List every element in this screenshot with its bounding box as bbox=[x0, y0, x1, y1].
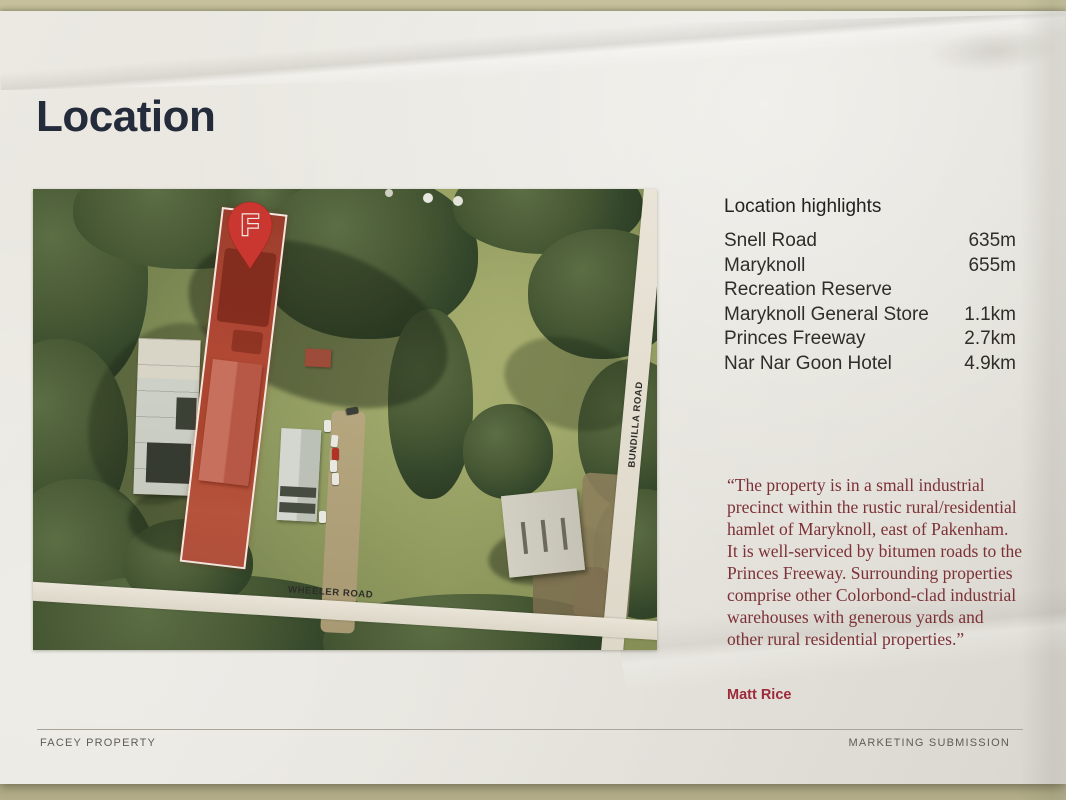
highlight-value: 635m bbox=[968, 229, 1016, 254]
roller-door-slit bbox=[521, 522, 528, 554]
parked-car bbox=[319, 511, 326, 523]
highlight-label: Nar Nar Goon Hotel bbox=[724, 352, 892, 377]
pin-icon: F bbox=[223, 199, 277, 273]
roller-door-slit bbox=[561, 518, 568, 550]
highlight-label: Snell Road bbox=[724, 229, 817, 254]
warehouse-bottom-right bbox=[501, 488, 585, 577]
page-title: Location bbox=[36, 92, 215, 142]
highlights-list: Snell Road 635m Maryknoll 655m Recreatio… bbox=[724, 229, 1016, 377]
footer-brand: FACEY PROPERTY bbox=[40, 737, 156, 749]
parked-car bbox=[332, 473, 339, 485]
parked-car bbox=[330, 460, 337, 472]
highlights-heading: Location highlights bbox=[724, 196, 881, 218]
solar-strip bbox=[279, 502, 315, 514]
f-marker-pin: F bbox=[223, 199, 277, 273]
dirt-patch bbox=[533, 567, 608, 619]
highlight-label: Maryknoll General Store bbox=[724, 303, 929, 328]
parked-car bbox=[330, 435, 338, 448]
aerial-map: BUNDILLA ROAD WHEELER ROAD F bbox=[33, 189, 657, 650]
solar-panel-array bbox=[176, 397, 197, 430]
highlight-label: Maryknoll bbox=[724, 254, 805, 279]
solar-panel-array bbox=[146, 442, 191, 484]
highlight-row: Recreation Reserve bbox=[724, 278, 1016, 303]
highlight-value: 1.1km bbox=[964, 303, 1016, 328]
roller-door-slit bbox=[541, 520, 548, 552]
solar-strip bbox=[280, 486, 316, 498]
highlight-row: Nar Nar Goon Hotel 4.9km bbox=[724, 352, 1016, 377]
warehouse-middle bbox=[277, 428, 322, 522]
shed-small-red bbox=[305, 348, 332, 367]
highlight-label: Princes Freeway bbox=[724, 327, 866, 352]
highlight-label: Recreation Reserve bbox=[724, 278, 892, 303]
footer-submission-label: MARKETING SUBMISSION bbox=[848, 737, 1010, 749]
highlight-value: 655m bbox=[968, 254, 1016, 279]
highlight-row: Princes Freeway 2.7km bbox=[724, 327, 1016, 352]
footer-rule bbox=[37, 729, 1023, 730]
highlight-value: 2.7km bbox=[964, 327, 1016, 352]
water-tank bbox=[385, 189, 393, 197]
parked-car bbox=[332, 448, 339, 460]
agent-quote: “The property is in a small industrial p… bbox=[727, 474, 1023, 650]
highlight-row: Maryknoll General Store 1.1km bbox=[724, 303, 1016, 328]
water-tank bbox=[423, 193, 433, 203]
photographed-page-background: { "page": { "title": "Location", "footer… bbox=[0, 0, 1066, 800]
highlight-row: Maryknoll 655m bbox=[724, 254, 1016, 279]
highlight-row: Snell Road 635m bbox=[724, 229, 1016, 254]
highlight-value: 4.9km bbox=[964, 352, 1016, 377]
pin-letter: F bbox=[241, 209, 259, 242]
water-tank bbox=[453, 196, 463, 206]
parked-car bbox=[324, 420, 331, 432]
quote-attribution: Matt Rice bbox=[727, 687, 791, 703]
